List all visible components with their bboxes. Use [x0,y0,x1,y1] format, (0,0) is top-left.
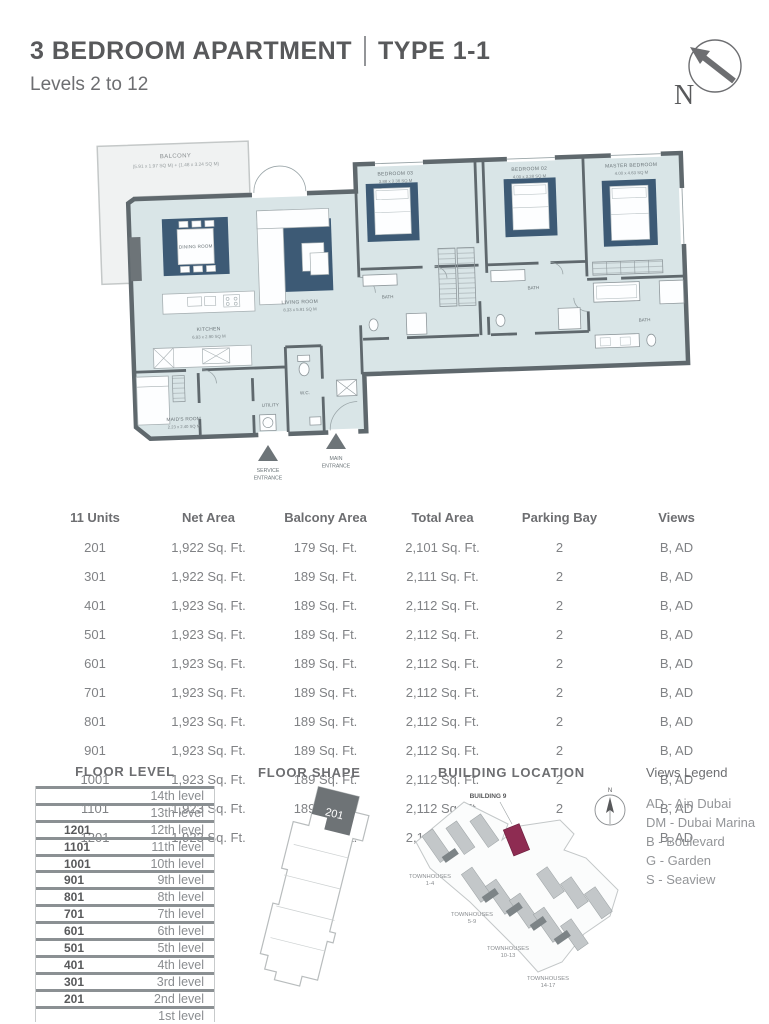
table-cell: 1,922 Sq. Ft. [150,562,267,591]
balcony-label: BALCONY [160,153,192,160]
kitchen-label: KITCHEN [197,326,221,333]
floor-shape-diagram: 201 [252,782,407,1024]
table-cell: 2,112 Sq. Ft. [384,678,501,707]
floor-level-unit: 801 [64,890,84,904]
bedroom2-label: BEDROOM 02 [511,166,547,173]
service-entrance-icon [258,445,278,461]
floor-level-row: 100110th level [36,854,214,871]
wall-pillar [129,237,142,281]
table-cell: 189 Sq. Ft. [267,649,384,678]
table-cell: 1,923 Sq. Ft. [150,591,267,620]
dining-area: DINING ROOM [162,217,230,276]
page-title: 3 BEDROOM APARTMENT [30,37,352,66]
table-cell: 601 [40,649,150,678]
floor-level-label: 11th level [151,840,204,854]
floor-level-unit: 601 [64,924,84,938]
table-cell: 179 Sq. Ft. [267,533,384,562]
compass-icon: N [660,28,755,113]
floor-level-row: 9019th level [36,870,214,887]
main-entrance-label-2: ENTRANCE [322,464,351,470]
living-room-label: LIVING ROOM [281,299,318,306]
table-cell: B, AD [618,620,735,649]
table-row: 7011,923 Sq. Ft.189 Sq. Ft.2,112 Sq. Ft.… [40,678,735,707]
table-row: 4011,923 Sq. Ft.189 Sq. Ft.2,112 Sq. Ft.… [40,591,735,620]
maids-room-label: MAID'S ROOM [166,416,201,423]
table-cell: 2 [501,678,618,707]
brochure-page: 3 BEDROOM APARTMENT TYPE 1-1 Levels 2 to… [0,0,769,1024]
floor-level-row: 7017th level [36,904,214,921]
units-column-header: Views [618,506,735,533]
svg-text:TOWNHOUSES: TOWNHOUSES [487,946,529,952]
building-9-label: BUILDING 9 [470,793,507,800]
floor-level-label: 3rd level [157,975,204,989]
table-cell: 2 [501,649,618,678]
table-cell: B, AD [618,562,735,591]
table-cell: B, AD [618,591,735,620]
table-cell: 2,112 Sq. Ft. [384,707,501,736]
table-cell: 1,923 Sq. Ft. [150,678,267,707]
units-column-header: Total Area [384,506,501,533]
table-cell: B, AD [618,533,735,562]
views-legend-item: B - Boulevard [646,832,766,851]
table-row: 2011,922 Sq. Ft.179 Sq. Ft.2,101 Sq. Ft.… [40,533,735,562]
table-cell: 189 Sq. Ft. [267,591,384,620]
floor-level-unit: 901 [64,873,84,887]
floor-level-unit: 501 [64,941,84,955]
levels-subtitle: Levels 2 to 12 [30,74,490,96]
floor-level-label: 1st level [158,1009,204,1023]
floor-level-row: 120112th level [36,820,214,837]
unit-type-label: TYPE 1-1 [378,37,490,66]
table-row: 8011,923 Sq. Ft.189 Sq. Ft.2,112 Sq. Ft.… [40,707,735,736]
service-entrance-label-2: ENTRANCE [254,476,283,482]
table-cell: 901 [40,736,150,765]
table-row: 6011,923 Sq. Ft.189 Sq. Ft.2,112 Sq. Ft.… [40,649,735,678]
bath2-label: BATH [527,285,539,290]
table-cell: 189 Sq. Ft. [267,707,384,736]
floor-level-row: 5015th level [36,938,214,955]
units-column-header: Balcony Area [267,506,384,533]
table-cell: B, AD [618,678,735,707]
floor-level-label: 9th level [157,873,204,887]
svg-text:1-4: 1-4 [426,881,435,887]
table-row: 9011,923 Sq. Ft.189 Sq. Ft.2,112 Sq. Ft.… [40,736,735,765]
floor-level-unit: 701 [64,907,84,921]
table-cell: 2 [501,707,618,736]
floor-level-unit: 401 [64,958,84,972]
main-entrance-label-1: MAIN [330,456,343,462]
floor-level-unit: 301 [64,975,84,989]
utility-label: UTILITY [262,402,279,408]
table-cell: 2 [501,620,618,649]
table-cell: 1,923 Sq. Ft. [150,620,267,649]
table-cell: 2 [501,533,618,562]
floor-level-label: 4th level [157,958,204,972]
floor-level-unit: 1201 [64,823,91,837]
table-cell: 1,923 Sq. Ft. [150,649,267,678]
floor-level-unit: 1101 [64,840,90,854]
floor-level-unit: 201 [64,992,84,1006]
floor-level-label: 6th level [157,924,204,938]
svg-text:TOWNHOUSES: TOWNHOUSES [409,874,451,880]
floor-level-row: 4014th level [36,955,214,972]
floor-plan: BALCONY (5.91 x 1.97 SQ M) + (1.48 x 3.2… [88,128,716,492]
table-cell: 1,923 Sq. Ft. [150,736,267,765]
entrances: SERVICE ENTRANCE MAIN ENTRANCE [254,433,351,482]
floor-level-row: 13th level [36,803,214,820]
table-cell: 2 [501,562,618,591]
floor-level-row: 2012nd level [36,989,214,1006]
svg-text:14-17: 14-17 [541,983,556,989]
floor-level-label: 2nd level [154,992,204,1006]
master-bath-label: BATH [639,317,651,322]
table-row: 3011,922 Sq. Ft.189 Sq. Ft.2,111 Sq. Ft.… [40,562,735,591]
table-cell: 2,112 Sq. Ft. [384,649,501,678]
table-cell: 801 [40,707,150,736]
floor-level-unit: 1001 [64,857,91,871]
bedroom3-label: BEDROOM 03 [377,170,413,177]
floor-level-label: 7th level [157,907,204,921]
compass-needle [702,56,734,81]
floor-level-title: FLOOR LEVEL [35,764,215,779]
table-cell: 2,112 Sq. Ft. [384,620,501,649]
units-column-header: Net Area [150,506,267,533]
wc-label: W.C. [300,390,310,395]
floor-shape-title: FLOOR SHAPE [258,765,361,780]
svg-text:TOWNHOUSES: TOWNHOUSES [451,912,493,918]
views-legend-item: AD - Ain Dubai [646,794,766,813]
table-cell: 501 [40,620,150,649]
table-cell: 2 [501,591,618,620]
svg-text:10-13: 10-13 [501,953,516,959]
building-location-map: BUILDING 9 TOWNHOUSES 1-4 TOWNHOUSES 5-9… [408,780,643,1010]
table-cell: 301 [40,562,150,591]
units-column-header: 11 Units [40,506,150,533]
table-cell: 2 [501,736,618,765]
table-cell: 2,112 Sq. Ft. [384,736,501,765]
floor-level-table: 14th level13th level120112th level110111… [35,786,215,1022]
table-cell: B, AD [618,707,735,736]
table-row: 5011,923 Sq. Ft.189 Sq. Ft.2,112 Sq. Ft.… [40,620,735,649]
floor-level-label: 12th level [150,823,204,837]
floor-level-label: 5th level [157,941,204,955]
views-legend-item: DM - Dubai Marina [646,813,766,832]
map-compass-icon: N [595,788,625,825]
table-cell: 189 Sq. Ft. [267,620,384,649]
compass-n-label: N [674,80,694,111]
floor-level-row: 6016th level [36,921,214,938]
floor-level-label: 13th level [150,806,204,820]
bath3-label: BATH [382,294,394,299]
floor-level-row: 14th level [36,786,214,803]
table-cell: 401 [40,591,150,620]
table-cell: 1,923 Sq. Ft. [150,707,267,736]
units-column-header: Parking Bay [501,506,618,533]
table-cell: 189 Sq. Ft. [267,562,384,591]
units-table-header-row: 11 UnitsNet AreaBalcony AreaTotal AreaPa… [40,506,735,533]
title-divider [364,36,366,66]
floor-level-row: 1st level [36,1006,214,1023]
views-legend: Views Legend AD - Ain DubaiDM - Dubai Ma… [646,765,766,889]
table-cell: 701 [40,678,150,707]
table-cell: 189 Sq. Ft. [267,736,384,765]
table-cell: 1,922 Sq. Ft. [150,533,267,562]
views-legend-title: Views Legend [646,765,766,780]
floor-level-row: 3013rd level [36,972,214,989]
table-cell: B, AD [618,736,735,765]
floor-level-label: 8th level [157,890,204,904]
table-cell: 201 [40,533,150,562]
floor-level-label: 14th level [150,789,204,803]
svg-text:TOWNHOUSES: TOWNHOUSES [527,976,569,982]
svg-text:5-9: 5-9 [468,919,476,925]
map-compass-n-label: N [608,788,612,794]
table-cell: 2,111 Sq. Ft. [384,562,501,591]
table-cell: 189 Sq. Ft. [267,678,384,707]
table-cell: B, AD [618,649,735,678]
building-location-title: BUILDING LOCATION [438,765,585,780]
floor-level-row: 8018th level [36,887,214,904]
table-cell: 2,101 Sq. Ft. [384,533,501,562]
floor-level-section: FLOOR LEVEL 14th level13th level120112th… [35,764,215,1022]
floor-level-row: 110111th level [36,837,214,854]
views-legend-item: S - Seaview [646,870,766,889]
floor-level-label: 10th level [150,857,204,871]
service-entrance-label-1: SERVICE [257,468,280,474]
views-legend-item: G - Garden [646,851,766,870]
table-cell: 2,112 Sq. Ft. [384,591,501,620]
page-header: 3 BEDROOM APARTMENT TYPE 1-1 Levels 2 to… [30,36,490,96]
